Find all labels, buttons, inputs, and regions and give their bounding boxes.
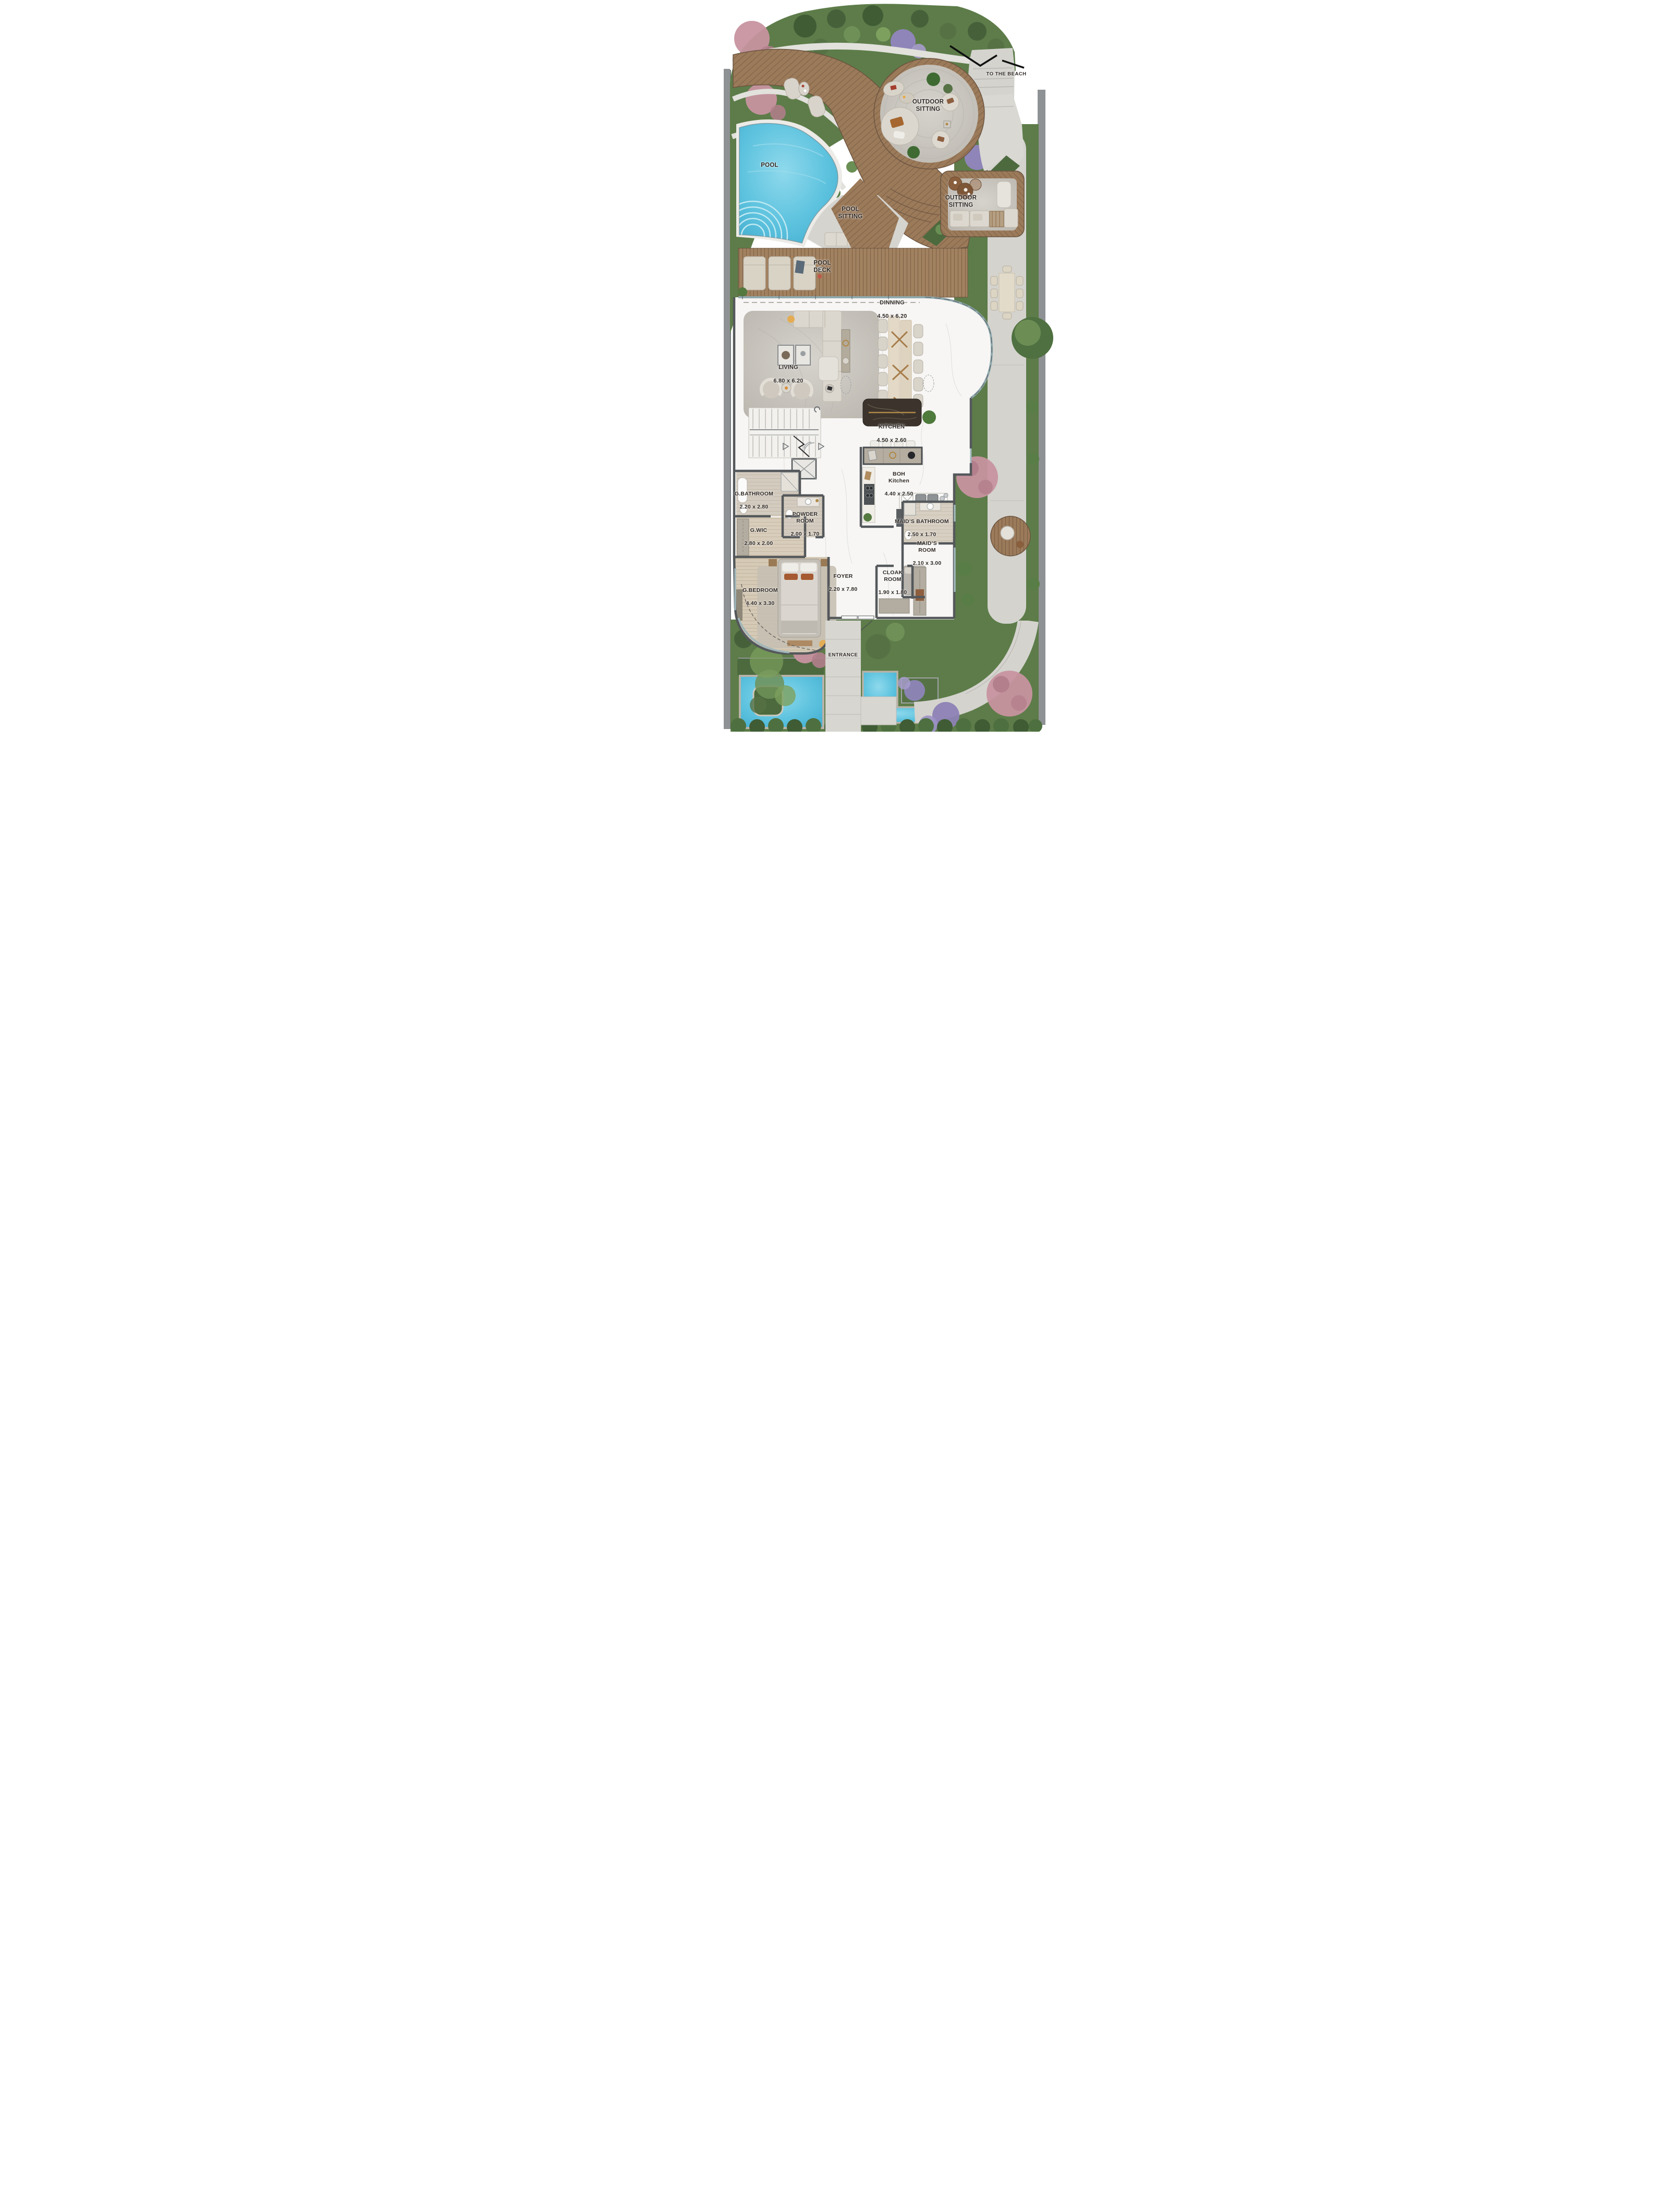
plant <box>943 84 953 93</box>
armchair <box>1001 526 1014 540</box>
coat <box>916 589 924 601</box>
nightstand <box>769 559 777 566</box>
plant <box>927 72 940 86</box>
plant <box>907 146 920 159</box>
nightstand <box>821 559 827 566</box>
house <box>734 295 992 653</box>
cushion <box>801 574 813 580</box>
toilet <box>905 530 912 540</box>
toilet <box>740 504 747 514</box>
sink <box>927 503 933 510</box>
left-road-strip <box>724 69 730 729</box>
outdoor-sofas <box>950 209 1018 227</box>
floor-lamp <box>787 316 795 323</box>
cushion <box>784 574 798 580</box>
pink-flower-tree <box>987 671 1032 717</box>
shower <box>904 503 916 515</box>
tray <box>868 450 877 460</box>
plan-graphics <box>560 0 1120 732</box>
round-table <box>970 179 981 190</box>
toilet <box>786 510 793 519</box>
bench <box>787 640 812 646</box>
bathtub <box>738 478 747 503</box>
lounge-chair <box>997 181 1011 208</box>
towel <box>795 260 805 274</box>
throw-blanket <box>781 621 818 633</box>
plant <box>863 513 872 522</box>
right-road-strip <box>1038 90 1045 725</box>
pillow <box>782 563 798 572</box>
pillow <box>800 563 817 572</box>
paving-pad <box>861 697 896 725</box>
side-table <box>1016 541 1024 548</box>
plant <box>922 410 936 424</box>
side-table <box>799 82 809 95</box>
bowl <box>908 452 915 459</box>
storage <box>879 599 909 613</box>
coffee-table <box>899 93 914 103</box>
round-sofa <box>881 107 919 145</box>
sink <box>806 499 811 505</box>
site-floor-plan: TO THE BEACH OUTDOOR SITTING POOL POOL S… <box>560 0 1120 732</box>
garden-deck-circle <box>991 516 1030 556</box>
grid-coffee-table <box>990 211 1004 227</box>
lounge-chair <box>819 357 838 381</box>
sideboard <box>842 330 850 372</box>
maids-bathroom <box>903 502 954 543</box>
outdoor-sitting-area-top <box>880 65 978 163</box>
